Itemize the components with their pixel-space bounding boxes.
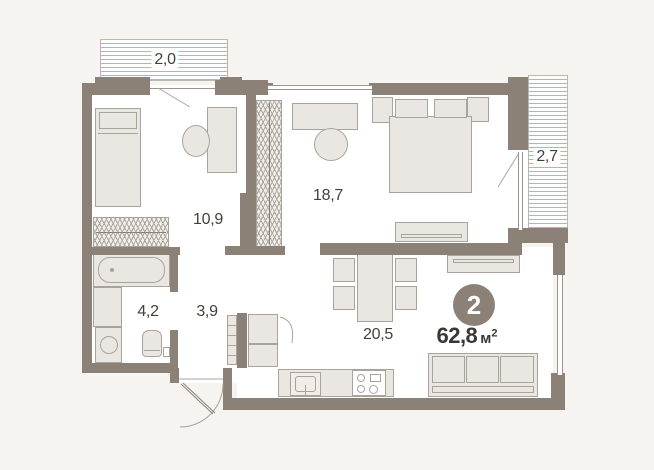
total-area-value: 62,8 [436, 323, 477, 348]
balcony-door-swing-small [158, 88, 190, 107]
room-count-badge: 2 [453, 284, 495, 326]
total-area: 62,8м2 [436, 323, 497, 349]
floorplan-canvas: 2,0 10,9 18,7 2,7 4,2 3,9 20,5 2 62,8м2 [0, 0, 654, 470]
total-area-sup: 2 [491, 328, 497, 340]
door-swing-lines [0, 0, 654, 470]
fridge-door-arc [280, 317, 293, 343]
area-label-balcony-top: 2,0 [151, 51, 178, 69]
area-label-bathroom: 4,2 [137, 303, 158, 321]
area-label-living-kitchen: 20,5 [363, 326, 393, 344]
total-area-unit: м [480, 330, 491, 347]
area-label-bedroom-master: 18,7 [313, 187, 343, 205]
entry-door-leaf [181, 383, 215, 414]
balcony-door-swing-master [498, 153, 519, 187]
area-label-hallway: 3,9 [196, 303, 217, 321]
area-label-balcony-right: 2,7 [533, 148, 560, 166]
entry-door-arc [180, 384, 223, 427]
area-label-bedroom-small: 10,9 [193, 211, 223, 229]
